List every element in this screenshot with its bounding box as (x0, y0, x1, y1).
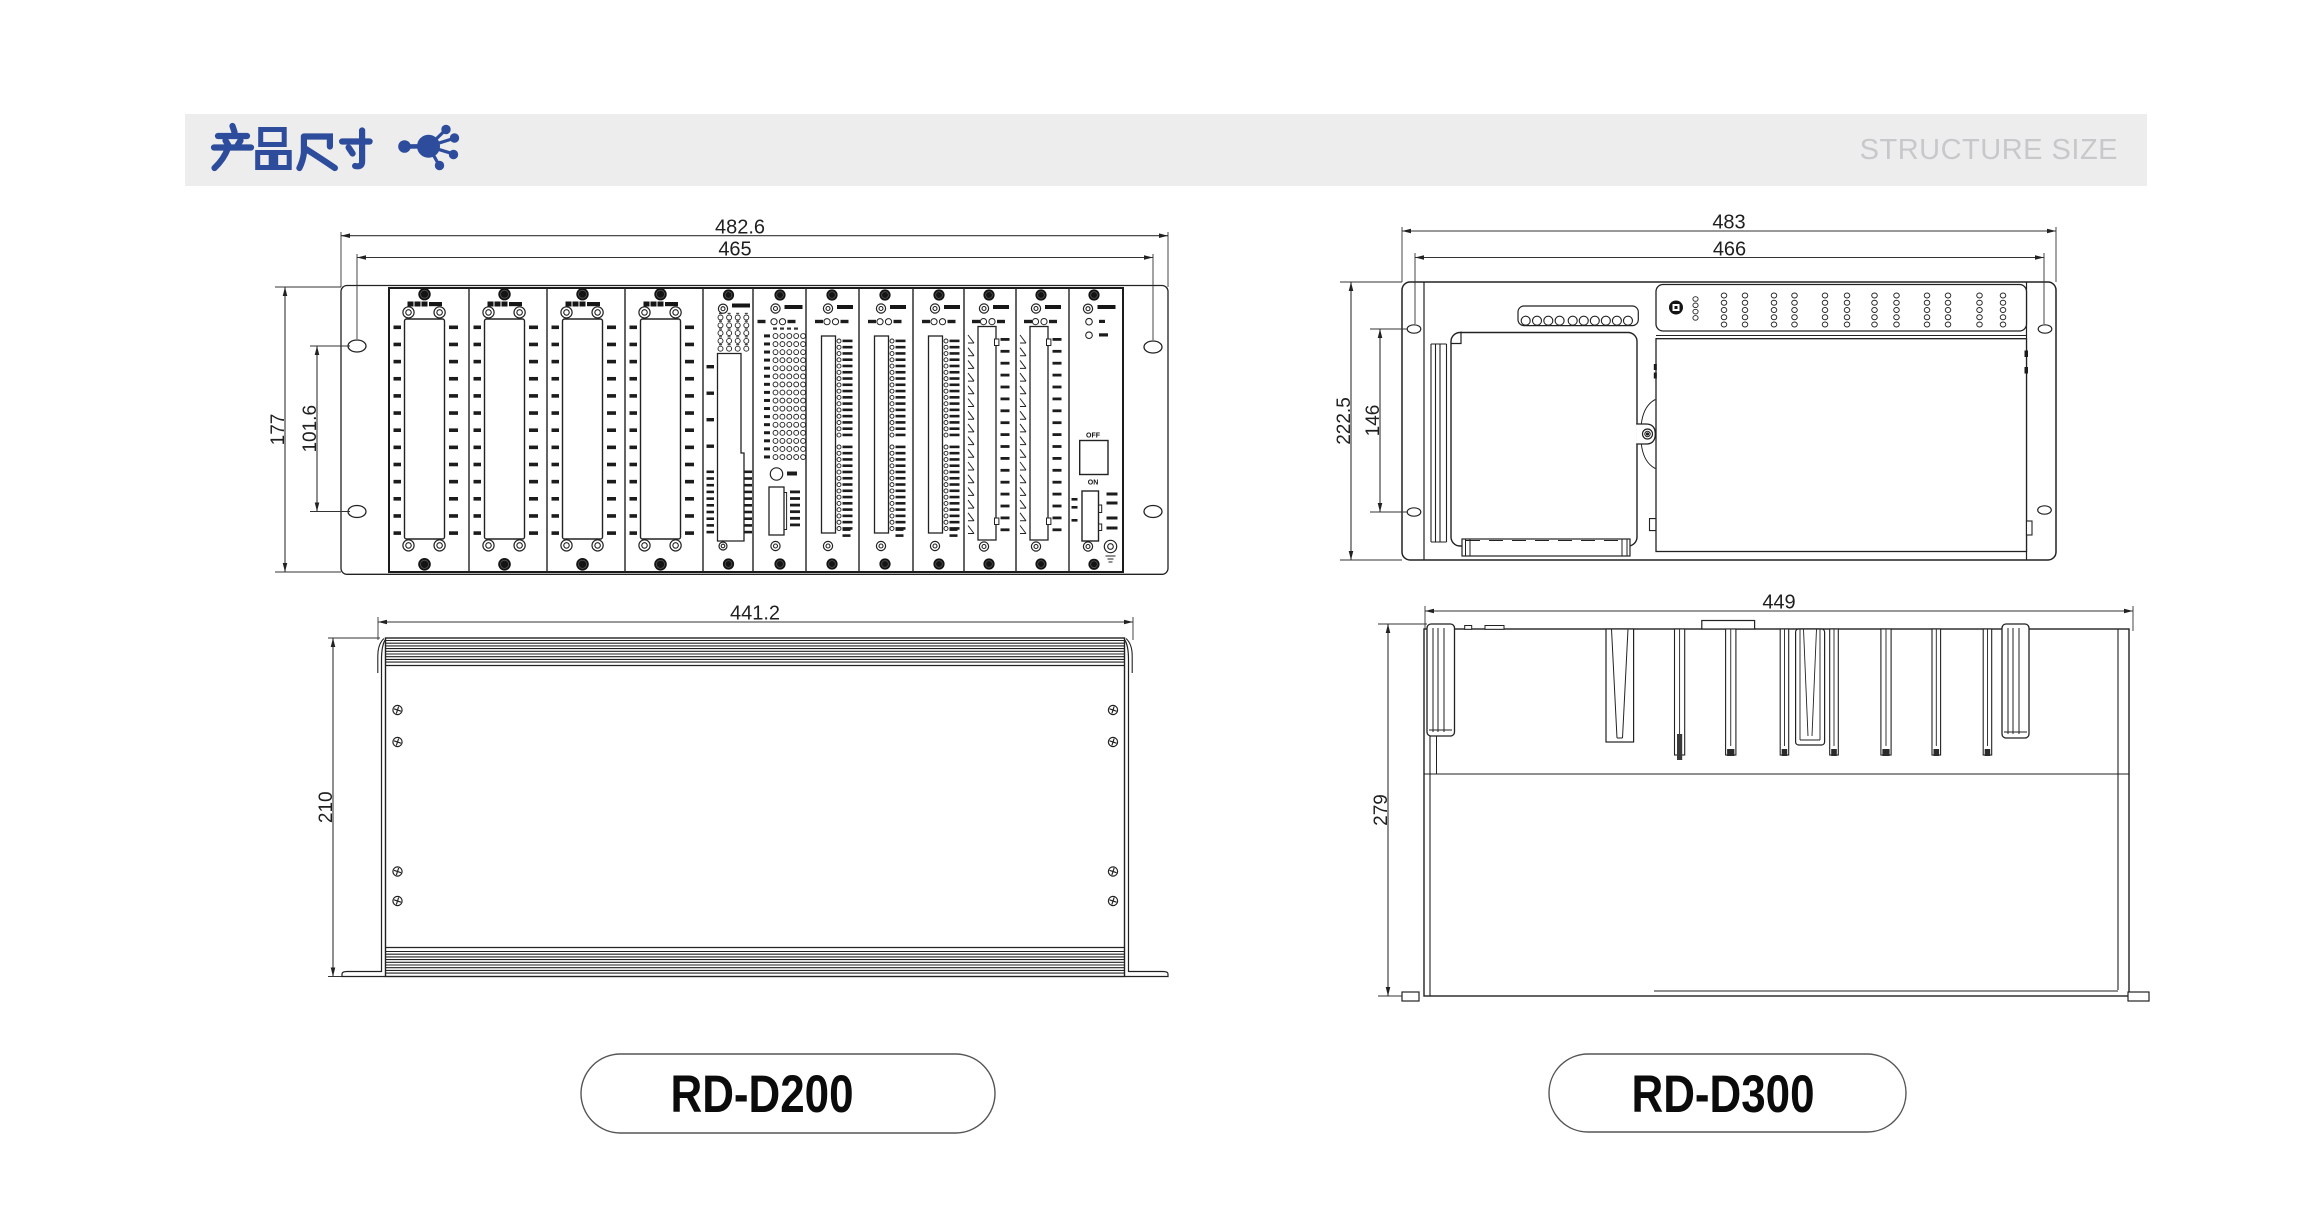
svg-text:449: 449 (1762, 592, 1795, 614)
svg-text:483: 483 (1712, 212, 1745, 234)
svg-text:210: 210 (316, 791, 337, 823)
svg-text:146: 146 (1363, 405, 1384, 437)
svg-text:466: 466 (1713, 238, 1746, 260)
svg-text:RD-D300: RD-D300 (1632, 1065, 1815, 1124)
svg-text:222.5: 222.5 (1334, 397, 1355, 445)
svg-text:ON: ON (1088, 480, 1099, 487)
svg-text:STRUCTURE SIZE: STRUCTURE SIZE (1860, 134, 2118, 166)
svg-text:279: 279 (1371, 794, 1392, 826)
svg-text:RD-D200: RD-D200 (671, 1065, 854, 1124)
svg-text:441.2: 441.2 (730, 603, 780, 625)
svg-text:101.6: 101.6 (300, 405, 321, 453)
svg-text:465: 465 (718, 239, 751, 261)
svg-text:OFF: OFF (1086, 433, 1101, 440)
svg-text:482.6: 482.6 (715, 217, 765, 239)
svg-text:177: 177 (268, 414, 289, 446)
